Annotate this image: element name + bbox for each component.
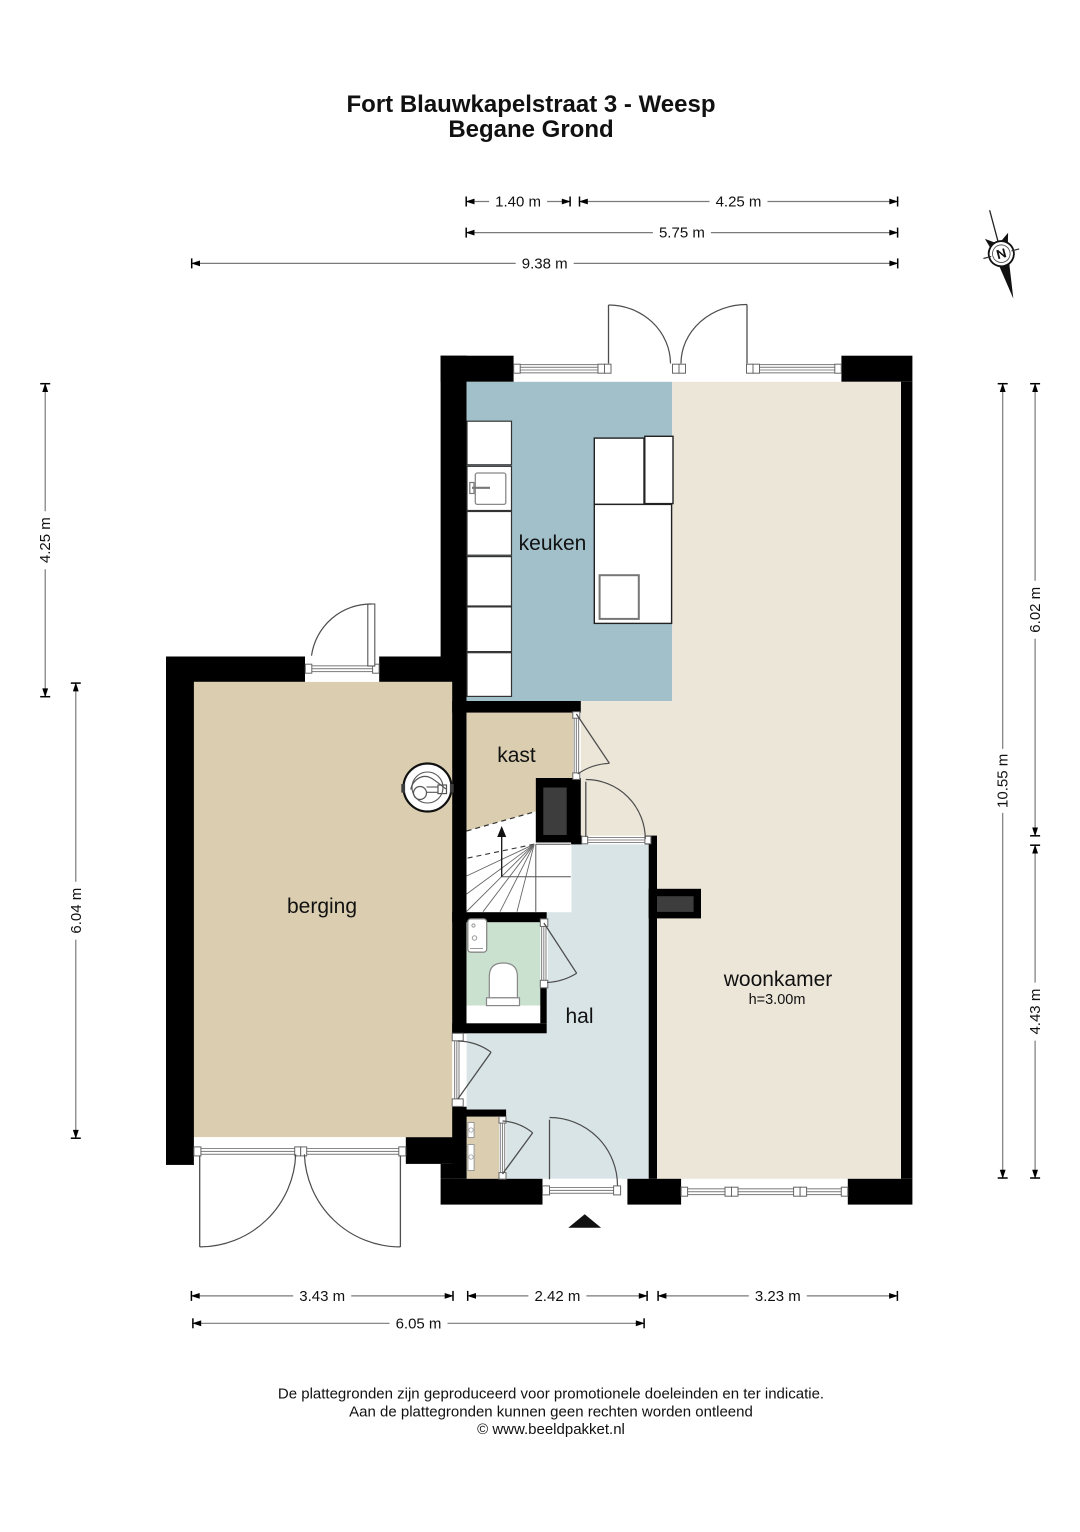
svg-text:3.23 m: 3.23 m (755, 1288, 801, 1305)
svg-text:Fort Blauwkapelstraat 3 - Wees: Fort Blauwkapelstraat 3 - Weesp (347, 91, 716, 118)
svg-text:hal: hal (565, 1005, 593, 1028)
svg-text:woonkamer: woonkamer (723, 968, 833, 991)
svg-text:10.55 m: 10.55 m (995, 754, 1012, 808)
svg-text:5.75 m: 5.75 m (659, 225, 705, 242)
svg-text:4.25 m: 4.25 m (716, 194, 762, 211)
svg-text:keuken: keuken (519, 532, 587, 555)
svg-text:6.02 m: 6.02 m (1027, 587, 1044, 633)
svg-text:9.38 m: 9.38 m (522, 255, 568, 272)
svg-text:6.04 m: 6.04 m (68, 888, 85, 934)
svg-text:Aan de plattegronden kunnen ge: Aan de plattegronden kunnen geen rechten… (349, 1404, 753, 1421)
svg-text:Begane Grond: Begane Grond (448, 116, 613, 143)
svg-text:6.05 m: 6.05 m (396, 1315, 442, 1332)
svg-text:h=3.00m: h=3.00m (749, 992, 806, 1008)
svg-text:3.43 m: 3.43 m (299, 1288, 345, 1305)
svg-text:berging: berging (287, 895, 357, 918)
svg-text:4.25 m: 4.25 m (37, 517, 54, 563)
svg-text:De plattegronden zijn geproduc: De plattegronden zijn geproduceerd voor … (278, 1386, 824, 1403)
svg-text:kast: kast (497, 744, 536, 767)
svg-text:1.40 m: 1.40 m (495, 194, 541, 211)
svg-text:© www.beeldpakket.nl: © www.beeldpakket.nl (477, 1421, 625, 1438)
svg-text:4.43 m: 4.43 m (1027, 989, 1044, 1035)
svg-text:2.42 m: 2.42 m (534, 1288, 580, 1305)
